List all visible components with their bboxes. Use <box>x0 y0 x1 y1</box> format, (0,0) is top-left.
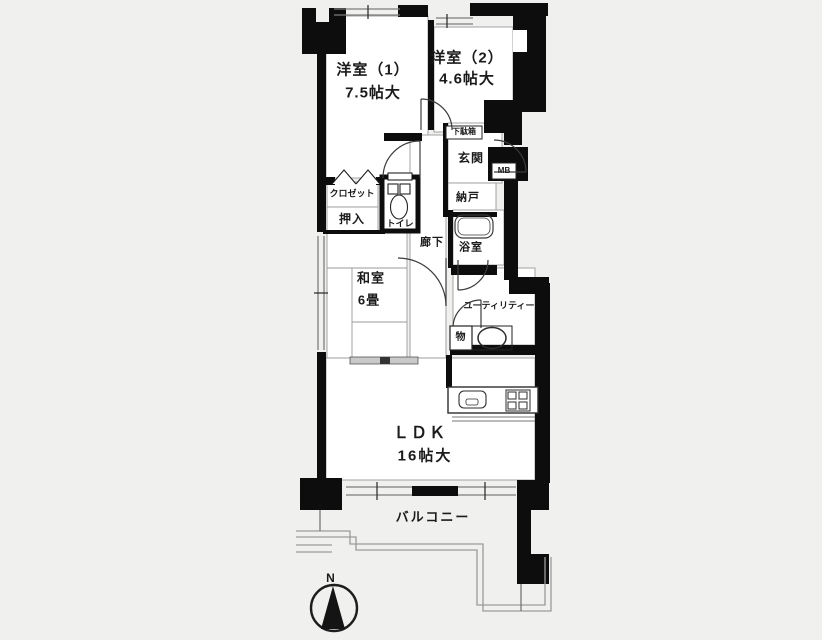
window-balcony <box>346 482 516 500</box>
compass <box>311 585 357 631</box>
label-yoshitsu2-size: 4.6帖大 <box>439 72 495 87</box>
wall-left-lower <box>317 352 326 480</box>
label-ldk-name: ＬＤＫ <box>393 426 447 442</box>
wall-pillar-br-top <box>517 480 549 510</box>
kitchen-sink-icon <box>459 391 486 408</box>
label-compass-north: N <box>326 572 336 584</box>
label-toilet: トイレ <box>386 220 413 229</box>
label-nando: 納戸 <box>456 193 480 204</box>
window-yoshitsu2-top <box>436 14 473 28</box>
floor-plan: 洋室（1） 7.5帖大 洋室（2） 4.6帖大 下駄箱 玄関 MB 納戸 クロゼ… <box>0 0 822 640</box>
compass-needle <box>321 586 345 629</box>
label-rouka: 廊下 <box>420 238 444 249</box>
label-genkan: 玄関 <box>458 152 484 164</box>
wall-right-lower <box>535 283 550 483</box>
window-washitsu-left <box>314 236 328 350</box>
label-getabako: 下駄箱 <box>452 128 476 136</box>
wall-oshiire-bottom <box>323 230 385 234</box>
label-balcony: バルコニー <box>396 511 471 524</box>
wall-left-upper <box>317 50 326 232</box>
wall-notch-top-left <box>316 8 329 22</box>
wall-hall-top <box>384 133 422 141</box>
wall-porch <box>484 100 506 133</box>
wall-top-center <box>398 5 428 17</box>
wall-pillar-bottom-left <box>300 478 342 510</box>
label-yokushitsu: 浴室 <box>459 243 483 254</box>
label-washitsu-size: 6畳 <box>358 294 380 307</box>
label-washitsu-name: 和室 <box>357 272 385 285</box>
stove-icon <box>506 390 530 411</box>
label-utility: ユーティリティー <box>464 302 535 311</box>
label-mb: MB <box>498 167 510 175</box>
wall-pillar-br-bottom <box>517 554 549 584</box>
wall-between-yoshitsu <box>428 20 434 130</box>
wall-porch-join <box>504 100 522 145</box>
sliding-door-washitsu-ldk <box>350 357 418 364</box>
toilet-door-gap <box>388 173 412 180</box>
label-ldk-size: 16帖大 <box>398 449 453 464</box>
label-yoshitsu1-size: 7.5帖大 <box>345 86 401 101</box>
floor-plan-drawing <box>0 0 822 640</box>
wall-bath-left <box>448 210 453 268</box>
label-yoshitsu1-name: 洋室（1） <box>336 63 409 78</box>
wall-right-column-upper <box>513 14 546 112</box>
wall-kitchen-left <box>446 355 452 388</box>
wall-notch-right <box>513 30 527 52</box>
label-oshiire: 押入 <box>339 213 365 225</box>
label-yoshitsu2-name: 洋室（2） <box>430 51 503 66</box>
wall-pillar-br-mid <box>517 510 531 554</box>
label-closet: クロゼット <box>329 190 374 199</box>
label-mono: 物 <box>456 333 467 343</box>
wall-right-mid <box>504 181 518 280</box>
